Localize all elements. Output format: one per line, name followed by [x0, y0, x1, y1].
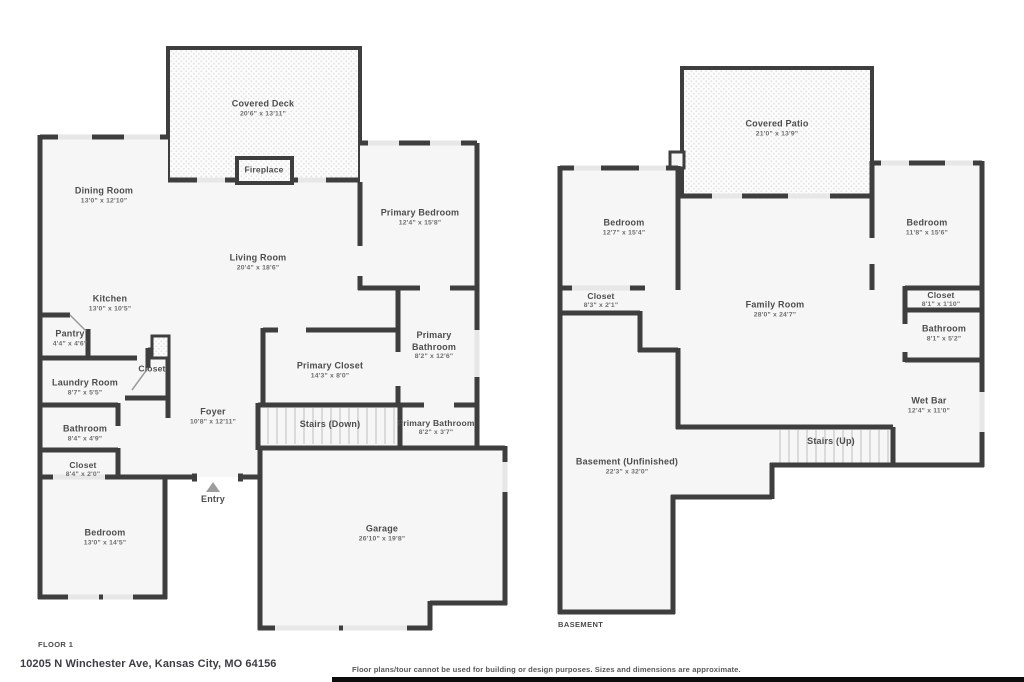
- basement-footprint: [560, 163, 982, 612]
- utility-chase: [152, 336, 169, 358]
- floorplan-page: Covered Deck 20'6" x 13'11" Fireplace Di…: [0, 0, 1024, 682]
- bottom-bar: [332, 677, 1024, 682]
- covered-patio-area: [682, 68, 872, 196]
- floor1-plan: [38, 48, 508, 631]
- property-address: 10205 N Winchester Ave, Kansas City, MO …: [20, 658, 277, 670]
- floor1-footprint: [40, 137, 505, 628]
- floorplan-drawing: [0, 0, 1024, 682]
- disclaimer-text: Floor plans/tour cannot be used for buil…: [352, 665, 741, 674]
- floor1-tag: FLOOR 1: [38, 640, 73, 649]
- basement-plan: [558, 68, 985, 614]
- basement-tag: BASEMENT: [558, 620, 603, 629]
- entry-arrow-icon: [206, 482, 220, 492]
- fireplace-box: [237, 158, 292, 183]
